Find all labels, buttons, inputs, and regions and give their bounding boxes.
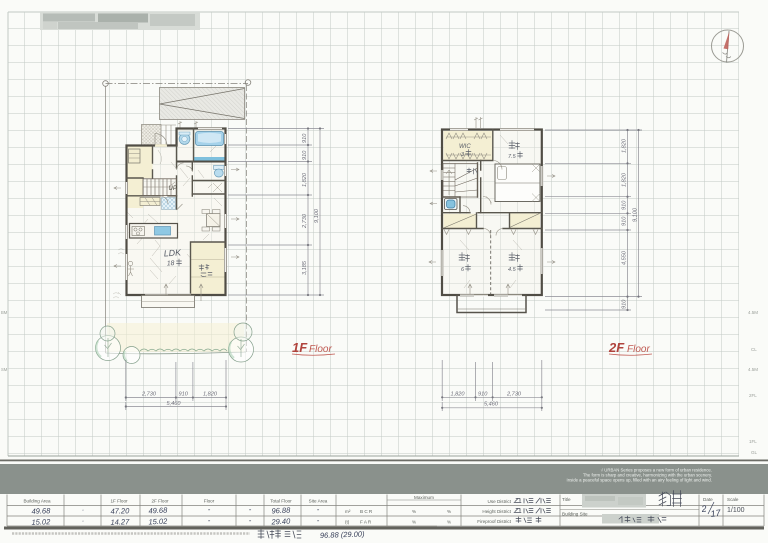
svg-text:(t): (t) xyxy=(345,520,350,525)
svg-text:49.68: 49.68 xyxy=(31,506,51,516)
svg-text:LDK: LDK xyxy=(163,247,182,258)
svg-text:Floor: Floor xyxy=(204,499,215,504)
svg-text:18: 18 xyxy=(167,260,175,268)
svg-text:4.5M: 4.5M xyxy=(748,367,758,372)
svg-text:3,185: 3,185 xyxy=(302,260,308,275)
svg-text:B C R: B C R xyxy=(360,509,373,514)
svg-text:Total Floor: Total Floor xyxy=(270,499,292,504)
svg-text:Fireproof District: Fireproof District xyxy=(477,519,511,524)
svg-text:5,460: 5,460 xyxy=(167,401,182,407)
svg-text:96.88 (29.00): 96.88 (29.00) xyxy=(320,529,365,540)
svg-text:F A R: F A R xyxy=(360,520,372,525)
svg-text:UP: UP xyxy=(169,186,177,192)
svg-text:Scale: Scale xyxy=(727,497,739,502)
svg-text:Date: Date xyxy=(703,497,713,502)
svg-text:49.68: 49.68 xyxy=(148,505,168,515)
svg-text:Floor: Floor xyxy=(627,344,650,355)
svg-text:%: % xyxy=(412,509,416,514)
svg-text:2FL: 2FL xyxy=(749,393,757,398)
svg-text:910: 910 xyxy=(179,392,189,398)
svg-text:96.88: 96.88 xyxy=(271,505,291,515)
svg-text:GL: GL xyxy=(751,450,758,455)
svg-text:Maximum: Maximum xyxy=(414,495,434,500)
svg-text:Title: Title xyxy=(562,497,571,502)
svg-text:1,820: 1,820 xyxy=(622,172,628,187)
svg-text:·: · xyxy=(82,505,85,514)
svg-text:2F Floor: 2F Floor xyxy=(151,499,169,504)
svg-text:%: % xyxy=(412,520,416,525)
svg-text:1FL: 1FL xyxy=(749,439,757,444)
svg-text:1,820: 1,820 xyxy=(302,172,308,187)
svg-text:Site Area: Site Area xyxy=(309,499,328,504)
svg-text:2,730: 2,730 xyxy=(506,391,522,397)
svg-text:Inside a peaceful space opens: Inside a peaceful space opens up, filled… xyxy=(567,478,712,483)
svg-text:1,820: 1,820 xyxy=(622,138,628,153)
svg-text:4,550: 4,550 xyxy=(622,250,628,265)
svg-text:910: 910 xyxy=(622,299,628,309)
svg-text:Building Site: Building Site xyxy=(562,512,588,517)
svg-text:5,460: 5,460 xyxy=(484,402,499,408)
svg-text:m²: m² xyxy=(345,509,351,514)
svg-text:29.40: 29.40 xyxy=(270,516,291,526)
svg-text:Floor: Floor xyxy=(309,344,332,355)
svg-text:1,820: 1,820 xyxy=(203,392,218,398)
svg-text:910: 910 xyxy=(302,133,308,143)
svg-text:%: % xyxy=(447,520,451,525)
svg-text:910: 910 xyxy=(302,150,308,160)
svg-text:4.5M: 4.5M xyxy=(748,310,758,315)
svg-text:SM: SM xyxy=(1,367,8,372)
svg-text:Use District: Use District xyxy=(488,499,512,504)
svg-text:4.5: 4.5 xyxy=(508,267,517,273)
svg-text:2,730: 2,730 xyxy=(141,392,157,398)
svg-text:9,100: 9,100 xyxy=(633,207,639,222)
svg-text:7.5: 7.5 xyxy=(508,154,517,160)
svg-text:1F Floor: 1F Floor xyxy=(110,499,128,504)
svg-text:CL: CL xyxy=(751,347,757,352)
svg-text:910: 910 xyxy=(622,200,628,210)
svg-text:15.02: 15.02 xyxy=(148,516,168,526)
svg-text:1,820: 1,820 xyxy=(451,391,466,397)
svg-text:1F: 1F xyxy=(292,340,308,355)
svg-text:WIC: WIC xyxy=(459,144,471,150)
svg-text:Height District: Height District xyxy=(482,509,511,514)
svg-text:Building Area: Building Area xyxy=(23,499,51,504)
svg-text:910: 910 xyxy=(478,391,488,397)
svg-text:BM: BM xyxy=(1,310,8,315)
svg-text:14.27: 14.27 xyxy=(110,517,130,527)
svg-text:47.20: 47.20 xyxy=(110,506,130,516)
svg-text:1/100: 1/100 xyxy=(727,507,745,514)
svg-text:2,730: 2,730 xyxy=(302,213,308,229)
svg-text:·: · xyxy=(82,516,85,525)
svg-text:%: % xyxy=(447,509,451,514)
svg-text:2F: 2F xyxy=(608,340,625,355)
svg-text:15.02: 15.02 xyxy=(31,517,51,527)
svg-text:910: 910 xyxy=(622,216,628,226)
svg-text:9,100: 9,100 xyxy=(314,208,320,223)
